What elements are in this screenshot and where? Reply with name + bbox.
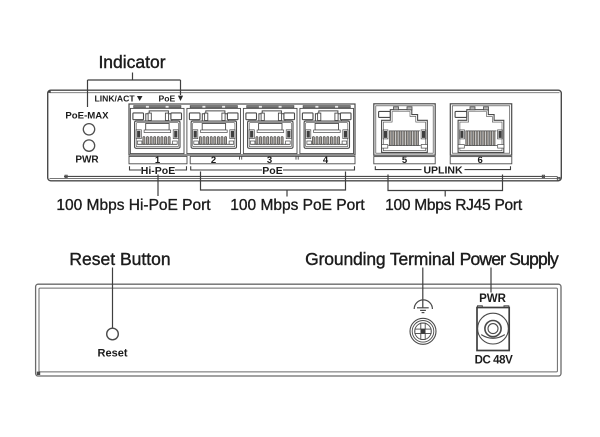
svg-text:4: 4	[323, 155, 329, 166]
svg-text:PoE: PoE	[262, 165, 282, 177]
svg-text:Power Supply: Power Supply	[460, 249, 559, 269]
svg-text:PWR: PWR	[479, 293, 507, 305]
svg-text:DC 48V: DC 48V	[475, 355, 514, 367]
svg-text:Reset Button: Reset Button	[69, 249, 170, 269]
svg-text:5: 5	[402, 155, 408, 166]
svg-text:UPLINK: UPLINK	[423, 165, 463, 177]
svg-text:100 Mbps RJ45 Port: 100 Mbps RJ45 Port	[385, 197, 523, 214]
svg-text:LINK/ACT: LINK/ACT	[95, 94, 136, 104]
svg-text:100 Mbps Hi-PoE Port: 100 Mbps Hi-PoE Port	[56, 197, 211, 214]
svg-text:PoE-MAX: PoE-MAX	[65, 110, 109, 121]
svg-text:2: 2	[211, 155, 216, 166]
svg-text:100 Mbps PoE Port: 100 Mbps PoE Port	[230, 197, 365, 214]
svg-text:Indicator: Indicator	[98, 52, 165, 72]
svg-text:6: 6	[478, 155, 483, 166]
svg-text:Reset: Reset	[98, 348, 128, 360]
svg-text:Grounding Terminal: Grounding Terminal	[305, 249, 455, 269]
svg-text:PWR: PWR	[75, 154, 99, 165]
svg-text:PoE: PoE	[159, 94, 176, 104]
